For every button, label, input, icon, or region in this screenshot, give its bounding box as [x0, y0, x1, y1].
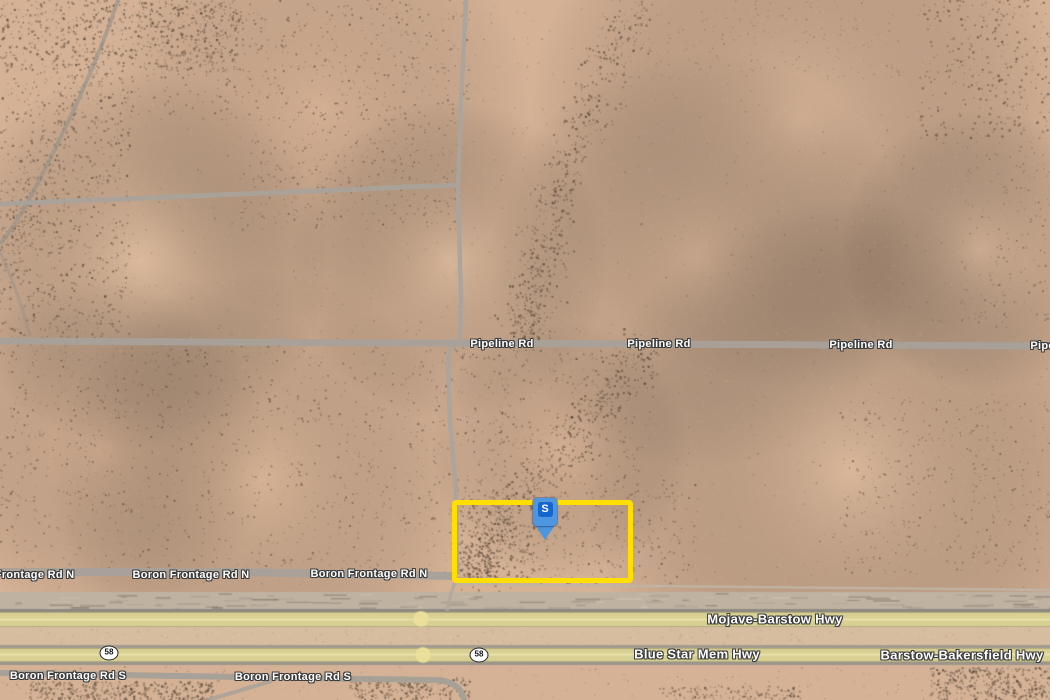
- road-label-boron-frontage-rd-s: Boron Frontage Rd S: [10, 670, 126, 682]
- road-label-pipeline-rd: Pipeline Rd: [1030, 340, 1050, 352]
- road-label-mojave-barstow-hwy: Mojave-Barstow Hwy: [707, 612, 842, 627]
- pin-tail: [535, 525, 555, 540]
- road-label-barstow-bakersfield-hwy: Barstow-Bakersfield Hwy: [881, 648, 1044, 663]
- pin-letter-badge: S: [538, 502, 553, 517]
- road-label-pipeline-rd: Pipeline Rd: [627, 338, 690, 350]
- satellite-map[interactable]: Pipeline RdPipeline RdPipeline RdPipelin…: [0, 0, 1050, 700]
- road-label-pipeline-rd: Pipeline Rd: [829, 339, 892, 351]
- highway-58-shield-icon: 58: [470, 648, 489, 663]
- road-label-boron-frontage-rd-s: Boron Frontage Rd S: [235, 671, 351, 683]
- route-marker-dot: [414, 612, 429, 627]
- road-label-boron-frontage-rd-n: Boron Frontage Rd N: [311, 568, 428, 580]
- highway-58-shield-icon: 58: [100, 646, 119, 661]
- property-marker-pin[interactable]: S: [533, 498, 557, 542]
- road-label-boron-frontage-rd-n: Boron Frontage Rd N: [133, 569, 250, 581]
- road-label-blue-star-mem-hwy: Blue Star Mem Hwy: [634, 647, 760, 662]
- road-label-pipeline-rd: Pipeline Rd: [470, 338, 533, 350]
- road-label-boron-frontage-rd-n: Boron Frontage Rd N: [0, 569, 74, 581]
- route-marker-dot: [416, 648, 431, 663]
